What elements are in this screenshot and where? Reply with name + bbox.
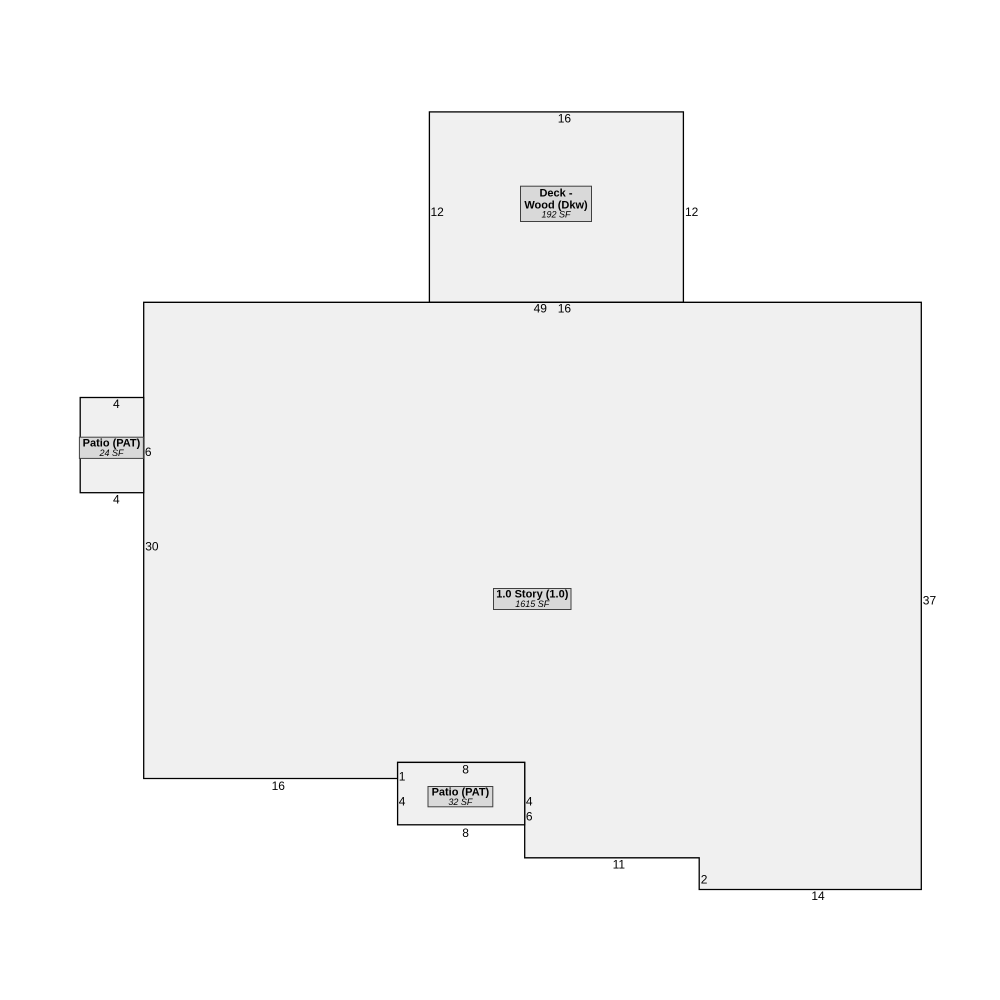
svg-text:4: 4 (526, 795, 533, 809)
svg-text:11: 11 (613, 858, 626, 872)
svg-text:16: 16 (558, 111, 572, 125)
svg-text:24 SF: 24 SF (98, 448, 124, 458)
svg-text:8: 8 (462, 826, 469, 840)
svg-text:14: 14 (811, 889, 825, 903)
svg-text:12: 12 (685, 205, 699, 219)
svg-text:32 SF: 32 SF (448, 797, 473, 807)
svg-text:1615 SF: 1615 SF (515, 599, 550, 609)
svg-text:12: 12 (431, 205, 445, 219)
svg-text:30: 30 (145, 539, 159, 553)
svg-text:6: 6 (145, 445, 152, 459)
svg-text:16: 16 (558, 302, 572, 316)
svg-text:37: 37 (923, 594, 937, 608)
svg-text:4: 4 (399, 795, 406, 809)
svg-text:1: 1 (399, 770, 406, 784)
svg-text:16: 16 (272, 779, 286, 793)
svg-text:4: 4 (113, 493, 120, 507)
svg-text:2: 2 (701, 873, 708, 887)
svg-text:6: 6 (526, 809, 533, 823)
svg-text:192 SF: 192 SF (541, 210, 571, 220)
svg-text:4: 4 (113, 397, 120, 411)
svg-text:49: 49 (534, 302, 548, 316)
svg-text:Deck -: Deck - (539, 188, 572, 200)
svg-text:8: 8 (462, 763, 469, 777)
